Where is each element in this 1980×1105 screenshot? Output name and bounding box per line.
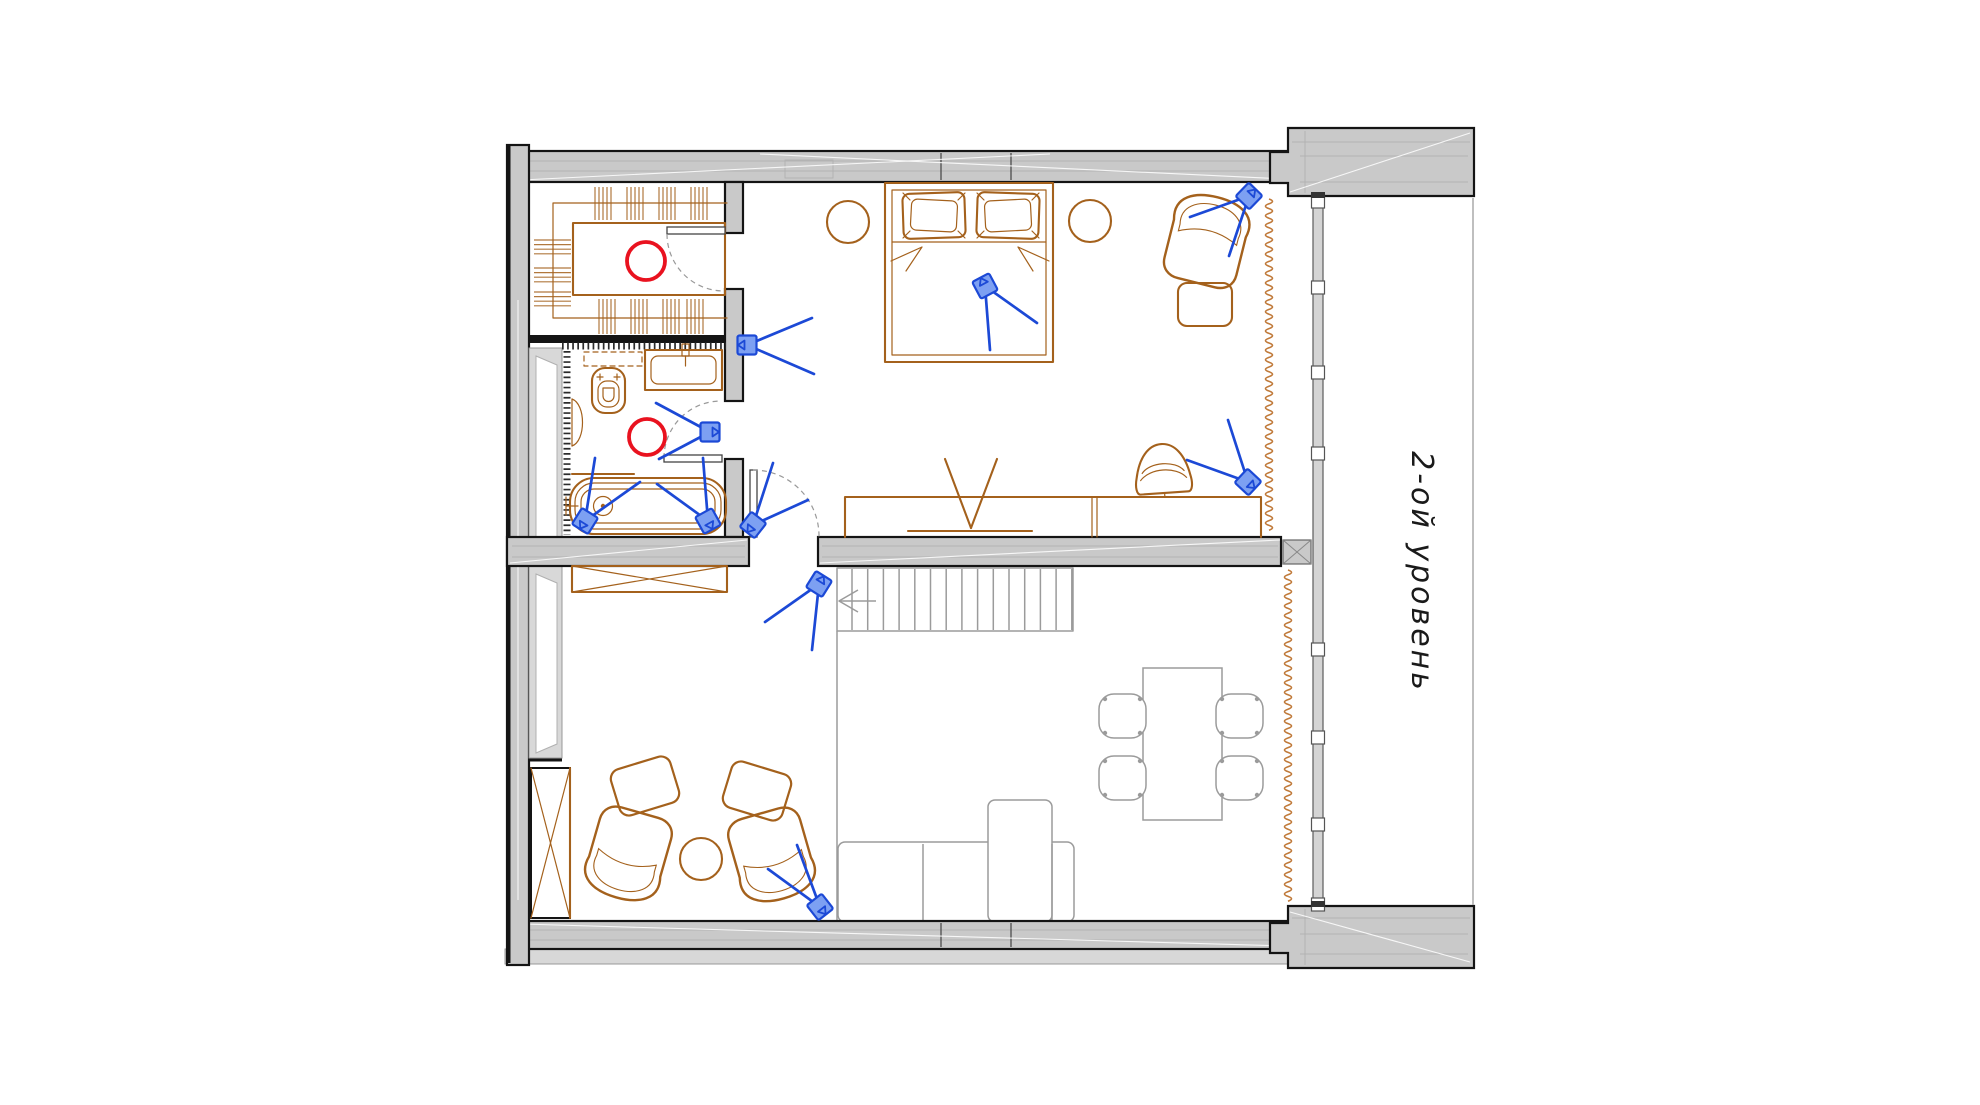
door-closet <box>667 227 725 291</box>
window-mullion <box>1312 447 1325 460</box>
camera-icon <box>1187 420 1261 495</box>
closet-wardrobe <box>534 187 727 334</box>
camera-body <box>1236 183 1263 210</box>
armchair-lounge-left <box>579 802 676 908</box>
ottoman-bedroom <box>1178 283 1232 326</box>
window-mullion <box>1312 818 1325 831</box>
sink <box>645 344 722 390</box>
camera-icon <box>738 318 815 374</box>
dining-chair <box>1216 756 1263 800</box>
tv-icon <box>908 459 1032 531</box>
curtain-upper <box>1266 199 1273 530</box>
stair-treads <box>852 569 1072 630</box>
window-mullion <box>1312 731 1325 744</box>
wardrobe-outline <box>553 203 727 318</box>
camera-icon <box>765 571 832 650</box>
window-mullion <box>1312 366 1325 379</box>
floor-plan: 2-ой уровень <box>0 0 1980 1105</box>
closet-bottom-wall <box>530 335 726 343</box>
sofa <box>838 800 1074 922</box>
dining-chair <box>1216 694 1263 738</box>
towel-radiator <box>572 399 583 446</box>
toilet <box>584 352 642 413</box>
camera-body <box>738 336 757 355</box>
camera-body <box>807 894 834 921</box>
window-glass-1 <box>536 356 557 548</box>
dining-table-group <box>1099 668 1263 820</box>
pier-closet-door <box>725 182 743 233</box>
armchair-lounge-right <box>723 803 820 909</box>
lounge-furniture <box>531 566 821 918</box>
nightstand-left <box>827 201 869 243</box>
window-glass-2 <box>536 574 557 753</box>
dining-chair <box>1099 756 1146 800</box>
console-x-top <box>572 566 727 592</box>
camera-body <box>572 508 598 534</box>
desk-chair <box>1133 442 1193 499</box>
staircase <box>837 568 1073 631</box>
camera-icon <box>768 845 833 920</box>
ottoman-lounge-left <box>608 754 681 818</box>
camera-body <box>806 571 832 597</box>
stair-flight <box>837 568 1073 631</box>
column-top-right <box>1270 128 1474 196</box>
bed <box>885 183 1053 362</box>
bedroom-furniture <box>827 183 1261 537</box>
camera-body <box>701 423 720 442</box>
balcony-window-wall <box>1313 197 1323 906</box>
ceiling-light-icon <box>629 419 665 455</box>
armchair-bedroom <box>1159 188 1254 292</box>
nightstand-right <box>1069 200 1111 242</box>
wardrobe-hanging-rails <box>534 187 707 334</box>
camera-body <box>1235 469 1262 496</box>
parapet-wall <box>818 537 1311 566</box>
dining-chair <box>1099 694 1146 738</box>
column-bottom-right <box>1270 906 1474 968</box>
level-label: 2-ой уровень <box>1404 451 1439 693</box>
coffee-table <box>680 838 722 880</box>
stair-direction-arrow-icon <box>839 590 876 612</box>
curtain-lower <box>1285 570 1292 901</box>
wall-bottom <box>505 921 1288 964</box>
camera-icon <box>1190 183 1262 256</box>
wall-bath-bottom <box>507 537 749 566</box>
window-mullion <box>1312 281 1325 294</box>
ceiling-light-icon <box>627 242 665 280</box>
glazing <box>1311 192 1473 911</box>
dining-table <box>1143 668 1222 820</box>
cabinet-x-left <box>531 768 570 918</box>
lower-level-furniture <box>837 568 1263 922</box>
window-mullion <box>1312 643 1325 656</box>
wall-top <box>516 151 1288 182</box>
